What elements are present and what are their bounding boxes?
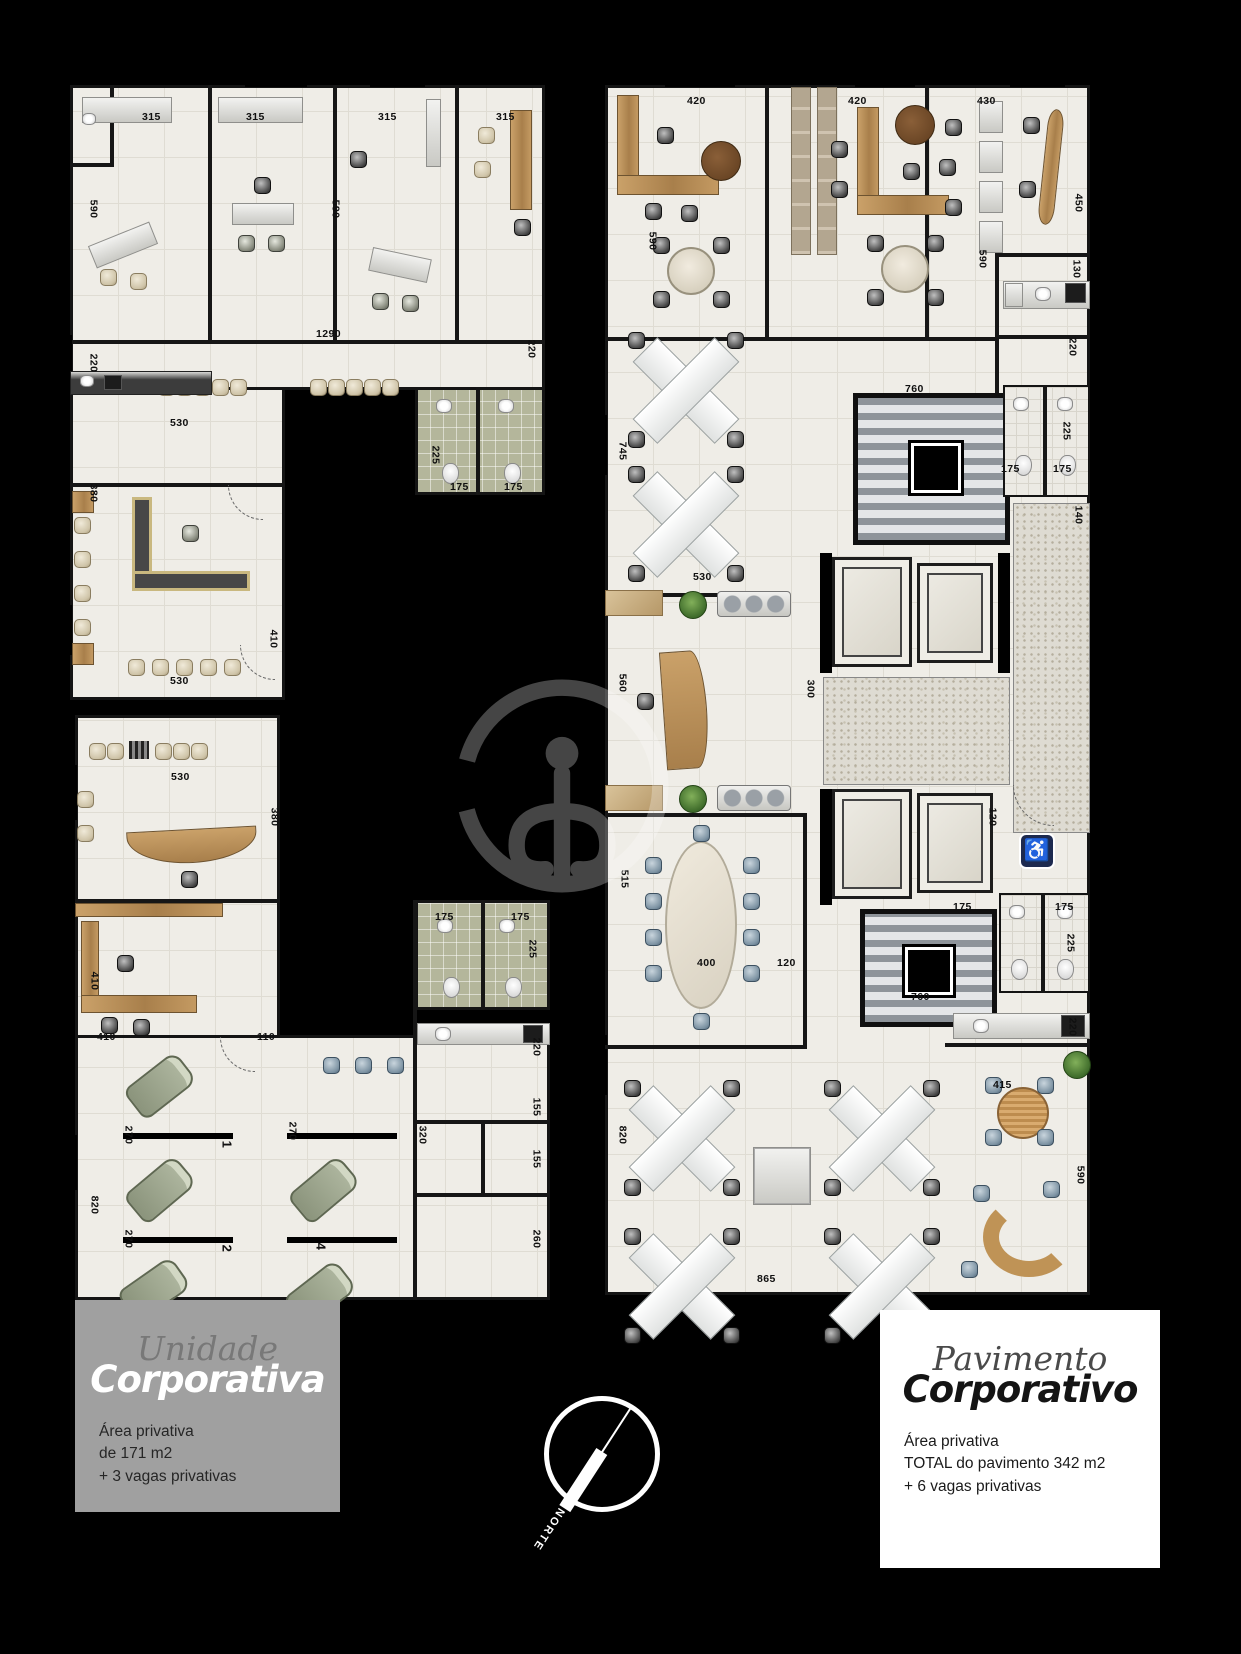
chair [624, 1080, 641, 1097]
chair [77, 791, 94, 808]
stair-core [905, 947, 953, 995]
exec-desk [617, 175, 719, 195]
wall [481, 1120, 485, 1195]
bathroom-stall-wall [1041, 893, 1045, 993]
chair [230, 379, 247, 396]
storage-box [979, 221, 1003, 253]
elevator [917, 563, 993, 663]
chair [350, 151, 367, 168]
chair [212, 379, 229, 396]
chair [824, 1080, 841, 1097]
chair [372, 293, 389, 310]
stove [523, 1025, 543, 1043]
chair [713, 291, 730, 308]
chair [74, 585, 91, 602]
wall [208, 85, 212, 340]
elevator-shaft-wall [820, 553, 832, 673]
chair [323, 1057, 340, 1074]
bathroom-stall-wall [1043, 385, 1047, 497]
parking-stripe [123, 1237, 233, 1243]
area-line: de 171 m2 [99, 1443, 340, 1465]
side-table [72, 491, 94, 513]
chair [867, 235, 884, 252]
area-line: TOTAL do pavimento 342 m2 [904, 1453, 1160, 1475]
chair [173, 743, 190, 760]
wall [455, 85, 459, 340]
chair [743, 929, 760, 946]
chair [923, 1080, 940, 1097]
chair [727, 332, 744, 349]
chair [645, 965, 662, 982]
chair [927, 289, 944, 306]
chair [474, 161, 491, 178]
bathroom-stall-wall [481, 900, 485, 1010]
wall [945, 1043, 1090, 1047]
magazine-rack [129, 741, 149, 759]
chair [355, 1057, 372, 1074]
toilet [1057, 959, 1074, 980]
chair [268, 235, 285, 252]
chair [514, 219, 531, 236]
chair [645, 929, 662, 946]
chair [89, 743, 106, 760]
toilet [505, 977, 522, 998]
chair [831, 181, 848, 198]
chair [310, 379, 327, 396]
exec-desk [857, 195, 949, 215]
stove [104, 375, 122, 390]
chair [382, 379, 399, 396]
sink [1009, 905, 1025, 919]
chair [624, 1179, 641, 1196]
chair [628, 332, 645, 349]
credenza [218, 97, 303, 123]
window-marker [598, 1035, 607, 1095]
chair [624, 1327, 641, 1344]
meeting-table [667, 247, 715, 295]
chair [364, 379, 381, 396]
chair [653, 291, 670, 308]
side-corridor [1013, 503, 1090, 833]
workstation-cluster [821, 1077, 941, 1197]
desk [232, 203, 294, 225]
exec-desk [81, 995, 197, 1013]
sink [1013, 397, 1029, 411]
area-line: Área privativa [904, 1431, 1160, 1453]
chair [713, 237, 730, 254]
parking-stripe [123, 1133, 233, 1139]
sink [82, 113, 96, 125]
window-marker [1010, 78, 1065, 87]
workstation-cluster [621, 1225, 741, 1345]
chair [653, 237, 670, 254]
chair [402, 295, 419, 312]
chair [723, 1179, 740, 1196]
toilet [1059, 455, 1076, 476]
window-marker [855, 78, 915, 87]
window-marker [598, 415, 607, 475]
chair [923, 1228, 940, 1245]
wall [765, 85, 769, 337]
chair [727, 565, 744, 582]
sink [435, 1027, 451, 1041]
chair [867, 289, 884, 306]
sink [1035, 287, 1051, 301]
window-marker [68, 765, 77, 820]
chair [723, 1327, 740, 1344]
window-marker [245, 78, 307, 87]
credenza [75, 903, 223, 917]
area-line: Área privativa [99, 1421, 340, 1443]
elevator [832, 789, 912, 899]
wheelchair-glyph: ♿ [1024, 839, 1050, 862]
window-marker [665, 78, 735, 87]
chair [727, 431, 744, 448]
chair [693, 825, 710, 842]
storage-box [979, 101, 1003, 133]
workstation-cluster [625, 329, 745, 449]
mirror [426, 99, 441, 167]
wall [413, 900, 417, 1300]
wheelchair-icon: ♿ [1019, 833, 1055, 869]
storage-box [979, 141, 1003, 173]
chair [681, 205, 698, 222]
north-label: NORTE [530, 1506, 566, 1553]
chair [1037, 1129, 1054, 1146]
storage-box [979, 181, 1003, 213]
chair [191, 743, 208, 760]
parking-stripe [287, 1133, 397, 1139]
meeting-table [881, 245, 929, 293]
chair [824, 1179, 841, 1196]
elevator-shaft-wall [998, 553, 1010, 673]
chair [328, 379, 345, 396]
wall [605, 1045, 807, 1049]
side-table [72, 643, 94, 665]
chair [1023, 117, 1040, 134]
chair [224, 659, 241, 676]
window-marker [370, 78, 425, 87]
pavimento-area-info: Área privativaTOTAL do pavimento 342 m2+… [904, 1431, 1160, 1498]
reception-counter [132, 571, 250, 591]
wall [803, 813, 807, 1049]
plant [679, 591, 707, 619]
area-line: + 3 vagas privativas [99, 1466, 340, 1488]
chair [923, 1179, 940, 1196]
chair [238, 235, 255, 252]
chair [657, 127, 674, 144]
chair [831, 141, 848, 158]
window-marker [68, 1135, 77, 1190]
chair [128, 659, 145, 676]
chair [628, 565, 645, 582]
stove [1061, 1015, 1085, 1037]
bench [717, 785, 791, 811]
chair [181, 871, 198, 888]
chair [200, 659, 217, 676]
chair [478, 127, 495, 144]
chair [628, 466, 645, 483]
area-line: + 6 vagas privativas [904, 1476, 1160, 1498]
unidade-title-box: Unidade Corporativa Área privativade 171… [75, 1300, 340, 1512]
chair [77, 825, 94, 842]
chair [723, 1080, 740, 1097]
chair [903, 163, 920, 180]
chair [723, 1228, 740, 1245]
chair [346, 379, 363, 396]
window-marker [63, 605, 72, 655]
chair [945, 199, 962, 216]
chair [693, 1013, 710, 1030]
unidade-area-info: Área privativade 171 m2+ 3 vagas privati… [99, 1421, 340, 1488]
chair [1037, 1077, 1054, 1094]
desk-return [701, 141, 741, 181]
desk-return [895, 105, 935, 145]
chair [939, 159, 956, 176]
chair [645, 203, 662, 220]
sink [437, 919, 453, 933]
toilet [504, 463, 521, 484]
credenza [605, 590, 663, 616]
chair [130, 273, 147, 290]
chair [945, 119, 962, 136]
chair [152, 659, 169, 676]
chair [985, 1129, 1002, 1146]
chair [927, 235, 944, 252]
chair [182, 525, 199, 542]
chair [74, 619, 91, 636]
bathroom-stall-wall [476, 387, 480, 495]
shelving [791, 87, 811, 255]
elevator [832, 557, 912, 667]
chair [743, 857, 760, 874]
pavimento-title-bold: Corporativo [880, 1368, 1160, 1411]
parking-stripe [287, 1237, 397, 1243]
plant [1063, 1051, 1091, 1079]
toilet [1015, 455, 1032, 476]
elevator-shaft-wall [820, 789, 832, 905]
chair [973, 1185, 990, 1202]
toilet [442, 463, 459, 484]
square-table [753, 1147, 811, 1205]
chair [824, 1228, 841, 1245]
sink [1057, 397, 1073, 411]
chair [624, 1228, 641, 1245]
sink [973, 1019, 989, 1033]
chair [133, 1019, 150, 1036]
watermark-anchor-logo [436, 660, 688, 912]
wall [333, 85, 337, 340]
chair [743, 893, 760, 910]
wall [995, 253, 1090, 257]
poster-canvas: 3153153153155905901290220220530225175175… [0, 0, 1241, 1654]
curved-desk [983, 1197, 1075, 1277]
chair [961, 1261, 978, 1278]
floor-plan-unidade-upper: 3153153153155905901290220220530225175175… [70, 85, 545, 700]
toilet [1011, 959, 1028, 980]
chair [727, 466, 744, 483]
fridge [1005, 283, 1023, 307]
workstation-cluster [621, 1077, 741, 1197]
sink [1057, 905, 1073, 919]
chair [628, 431, 645, 448]
chair [1043, 1181, 1060, 1198]
chair [117, 955, 134, 972]
sink [499, 919, 515, 933]
unidade-title-bold: Corporativa [75, 1358, 340, 1401]
chair [74, 551, 91, 568]
elevator [917, 793, 993, 893]
chair [107, 743, 124, 760]
wall [70, 340, 545, 344]
chair [100, 269, 117, 286]
sink [80, 375, 94, 387]
shelving [817, 87, 837, 255]
chair [155, 743, 172, 760]
pavimento-title-box: Pavimento Corporativo Área privativaTOTA… [880, 1310, 1160, 1568]
sink [498, 399, 514, 413]
toilet [443, 977, 460, 998]
wall [70, 163, 114, 167]
needle-bar [559, 1448, 607, 1512]
elevator-lobby [823, 677, 1010, 785]
stair-core [911, 443, 961, 493]
wall [995, 335, 1090, 339]
chair [743, 965, 760, 982]
chair [1019, 181, 1036, 198]
bathroom-floor [415, 387, 545, 495]
workstation-cluster [625, 463, 745, 583]
needle-line [600, 1406, 632, 1454]
chair [176, 659, 193, 676]
north-compass: NORTE [544, 1396, 660, 1512]
chair [387, 1057, 404, 1074]
chair [254, 177, 271, 194]
bench [717, 591, 791, 617]
chair [985, 1077, 1002, 1094]
exec-desk [510, 110, 532, 210]
compass-needle: NORTE [522, 1374, 682, 1534]
stove [1065, 283, 1086, 303]
chair [824, 1327, 841, 1344]
chair [74, 517, 91, 534]
sink [436, 399, 452, 413]
chair [101, 1017, 118, 1034]
